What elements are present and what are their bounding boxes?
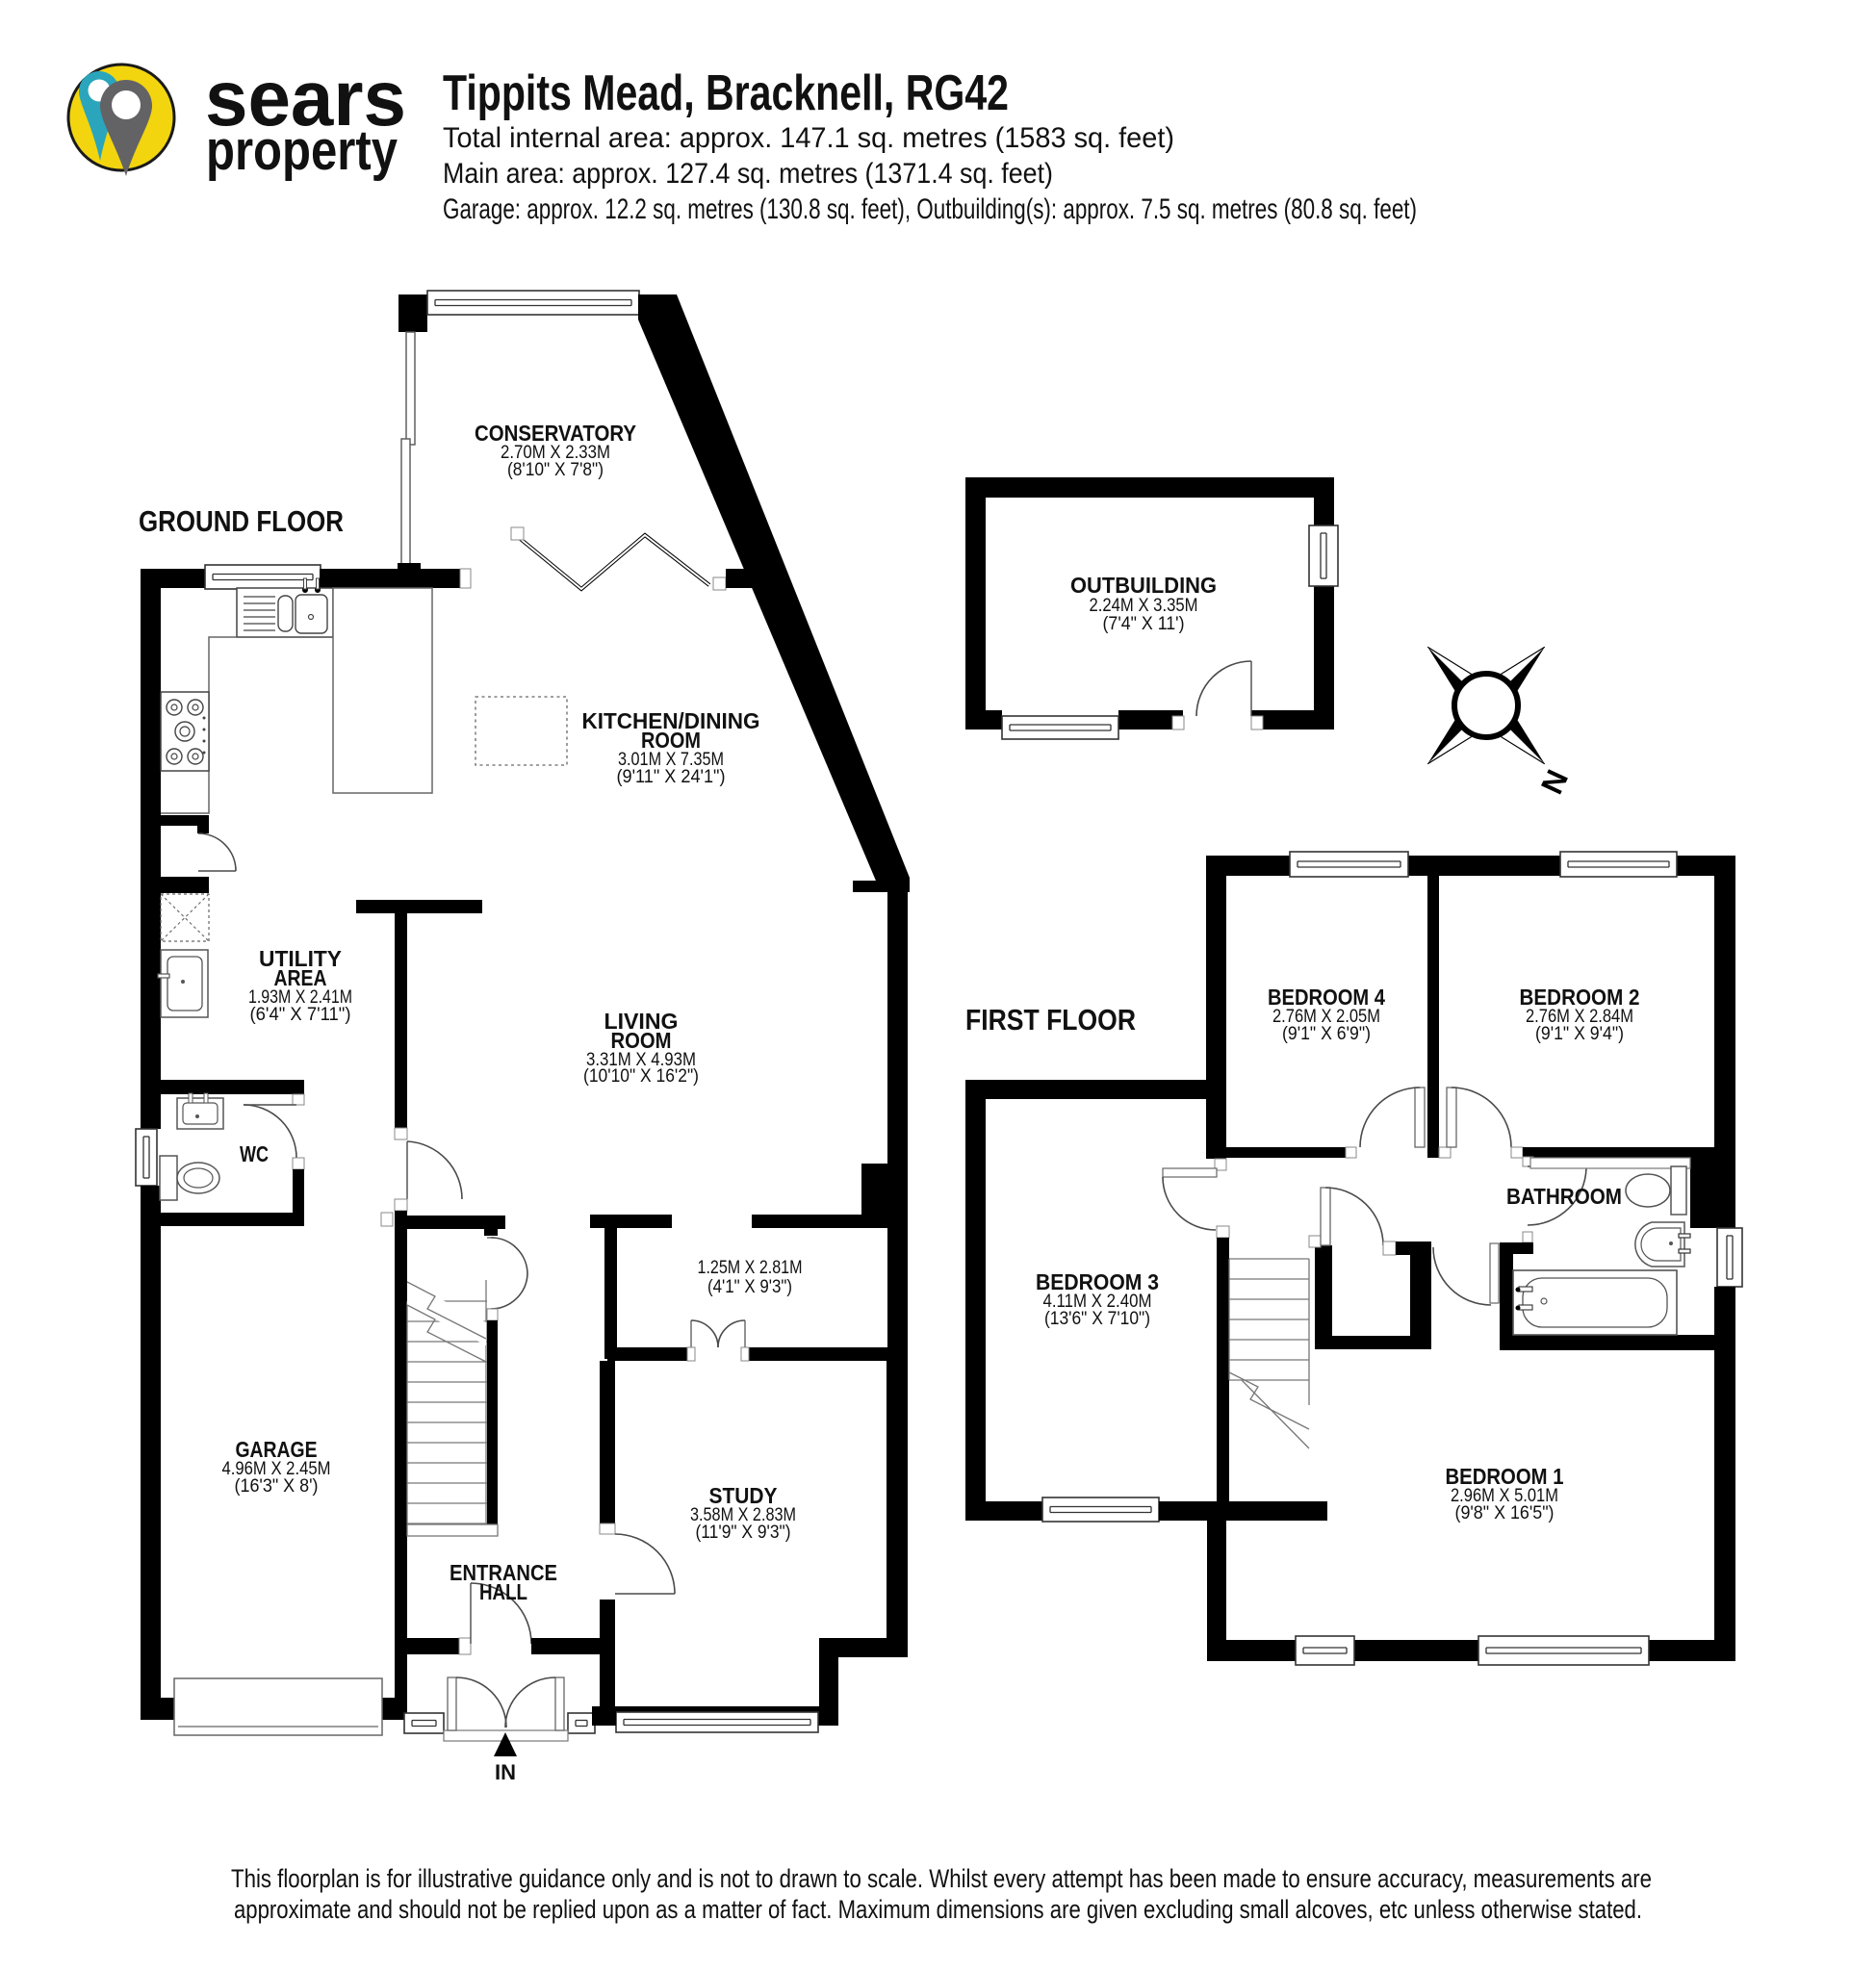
svg-text:(9'11" X 24'1"): (9'11" X 24'1") [617, 767, 726, 787]
svg-text:Total internal area: approx. 1: Total internal area: approx. 147.1 sq. m… [443, 122, 1174, 154]
svg-text:HALL: HALL [479, 1579, 527, 1604]
svg-text:(8'10" X 7'8"): (8'10" X 7'8") [507, 460, 604, 480]
svg-text:Main area: approx. 127.4 sq. m: Main area: approx. 127.4 sq. metres (137… [443, 158, 1053, 190]
svg-text:(11'9" X 9'3"): (11'9" X 9'3") [696, 1523, 791, 1543]
svg-text:(13'6" X 7'10"): (13'6" X 7'10") [1044, 1309, 1150, 1329]
svg-text:(4'1" X 9'3"): (4'1" X 9'3") [707, 1277, 792, 1297]
svg-text:(9'8" X 16'5"): (9'8" X 16'5") [1455, 1503, 1555, 1523]
svg-text:WC: WC [240, 1141, 269, 1166]
svg-text:BATHROOM: BATHROOM [1506, 1184, 1622, 1209]
svg-text:This floorplan is for illustra: This floorplan is for illustrative guida… [231, 1864, 1652, 1893]
svg-text:(6'4" X 7'11"): (6'4" X 7'11") [250, 1005, 351, 1025]
svg-text:approximate and should not be: approximate and should not be replied up… [234, 1895, 1642, 1924]
svg-text:IN: IN [495, 1760, 516, 1784]
svg-text:(9'1" X 9'4"): (9'1" X 9'4") [1535, 1024, 1624, 1044]
svg-text:OUTBUILDING: OUTBUILDING [1070, 573, 1217, 598]
svg-text:GROUND FLOOR: GROUND FLOOR [139, 504, 344, 538]
svg-text:(9'1" X 6'9"): (9'1" X 6'9") [1282, 1024, 1371, 1044]
svg-text:FIRST FLOOR: FIRST FLOOR [965, 1003, 1136, 1037]
svg-text:1.25M X 2.81M: 1.25M X 2.81M [698, 1258, 803, 1278]
svg-text:Tippits Mead, Bracknell, RG42: Tippits Mead, Bracknell, RG42 [443, 65, 1009, 121]
svg-text:(16'3" X 8'): (16'3" X 8') [235, 1476, 319, 1497]
svg-text:2.24M X 3.35M: 2.24M X 3.35M [1090, 596, 1198, 616]
svg-text:(10'10" X 16'2"): (10'10" X 16'2") [583, 1066, 699, 1087]
svg-text:(7'4" X 11'): (7'4" X 11') [1103, 614, 1185, 634]
svg-text:Garage: approx. 12.2 sq. metre: Garage: approx. 12.2 sq. metres (130.8 s… [443, 193, 1417, 225]
svg-text:property: property [206, 119, 398, 182]
